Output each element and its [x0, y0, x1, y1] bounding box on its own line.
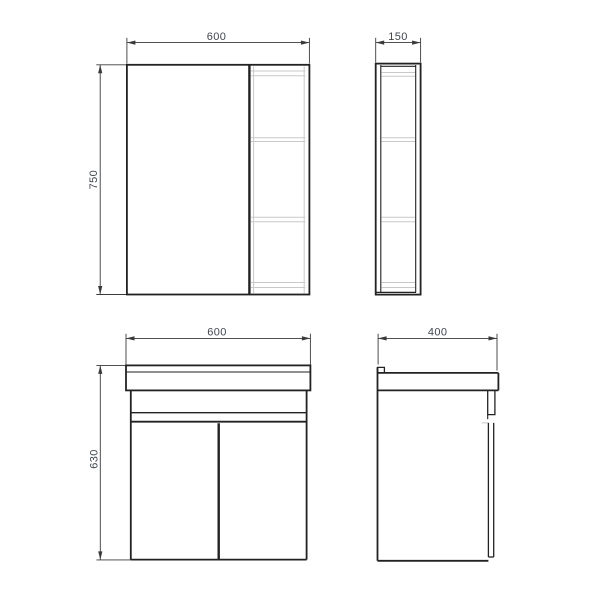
front-rail — [488, 390, 495, 414]
arrowhead-left — [126, 336, 135, 340]
arrowhead-left — [127, 41, 135, 45]
dimension-label: 750 — [88, 170, 100, 190]
arrowhead-right — [302, 336, 311, 340]
side-basin-profile — [378, 367, 499, 390]
mirror-cabinet-front-view: 600 750 — [88, 31, 309, 295]
arrowhead-down — [98, 551, 102, 560]
arrowhead-left — [376, 41, 385, 45]
vanity-cabinet-body — [131, 390, 307, 559]
dimension-vanity-height: 630 — [88, 365, 131, 560]
dimension-vanity-depth: 400 — [378, 327, 497, 371]
furniture-dimension-drawing: 600 750 — [0, 0, 600, 600]
mirror-cabinet-side-view: 150 — [376, 31, 421, 295]
side-carcass — [378, 367, 489, 560]
arrowhead-right — [412, 41, 421, 45]
open-shelf-column — [251, 66, 306, 293]
side-shelf-lines — [382, 73, 415, 288]
dimension-label: 630 — [88, 449, 100, 469]
dimension-mirror-width: 600 — [127, 31, 310, 64]
arrowhead-left — [378, 336, 387, 340]
arrowhead-right — [489, 336, 498, 340]
arrowhead-up — [98, 65, 102, 74]
dimension-label: 600 — [207, 31, 227, 43]
vanity-side-view: 400 — [378, 327, 499, 561]
arrowhead-right — [301, 41, 310, 45]
side-front-profile — [482, 390, 495, 557]
drawing-canvas: 600 750 — [0, 0, 600, 600]
dimension-label: 400 — [428, 327, 448, 339]
dimension-label: 150 — [388, 31, 408, 43]
vanity-front-view: 600 630 — [88, 327, 310, 560]
dimension-vanity-width: 600 — [126, 327, 310, 366]
basin-outline — [126, 365, 310, 390]
dimension-mirror-depth: 150 — [376, 31, 421, 63]
arrowhead-up — [98, 365, 102, 374]
washbasin-top — [126, 365, 310, 390]
dimension-mirror-height: 750 — [88, 65, 127, 295]
arrowhead-down — [98, 286, 102, 295]
dimension-label: 600 — [207, 327, 227, 339]
side-outline — [376, 64, 421, 295]
cabinet-outline — [127, 65, 310, 295]
